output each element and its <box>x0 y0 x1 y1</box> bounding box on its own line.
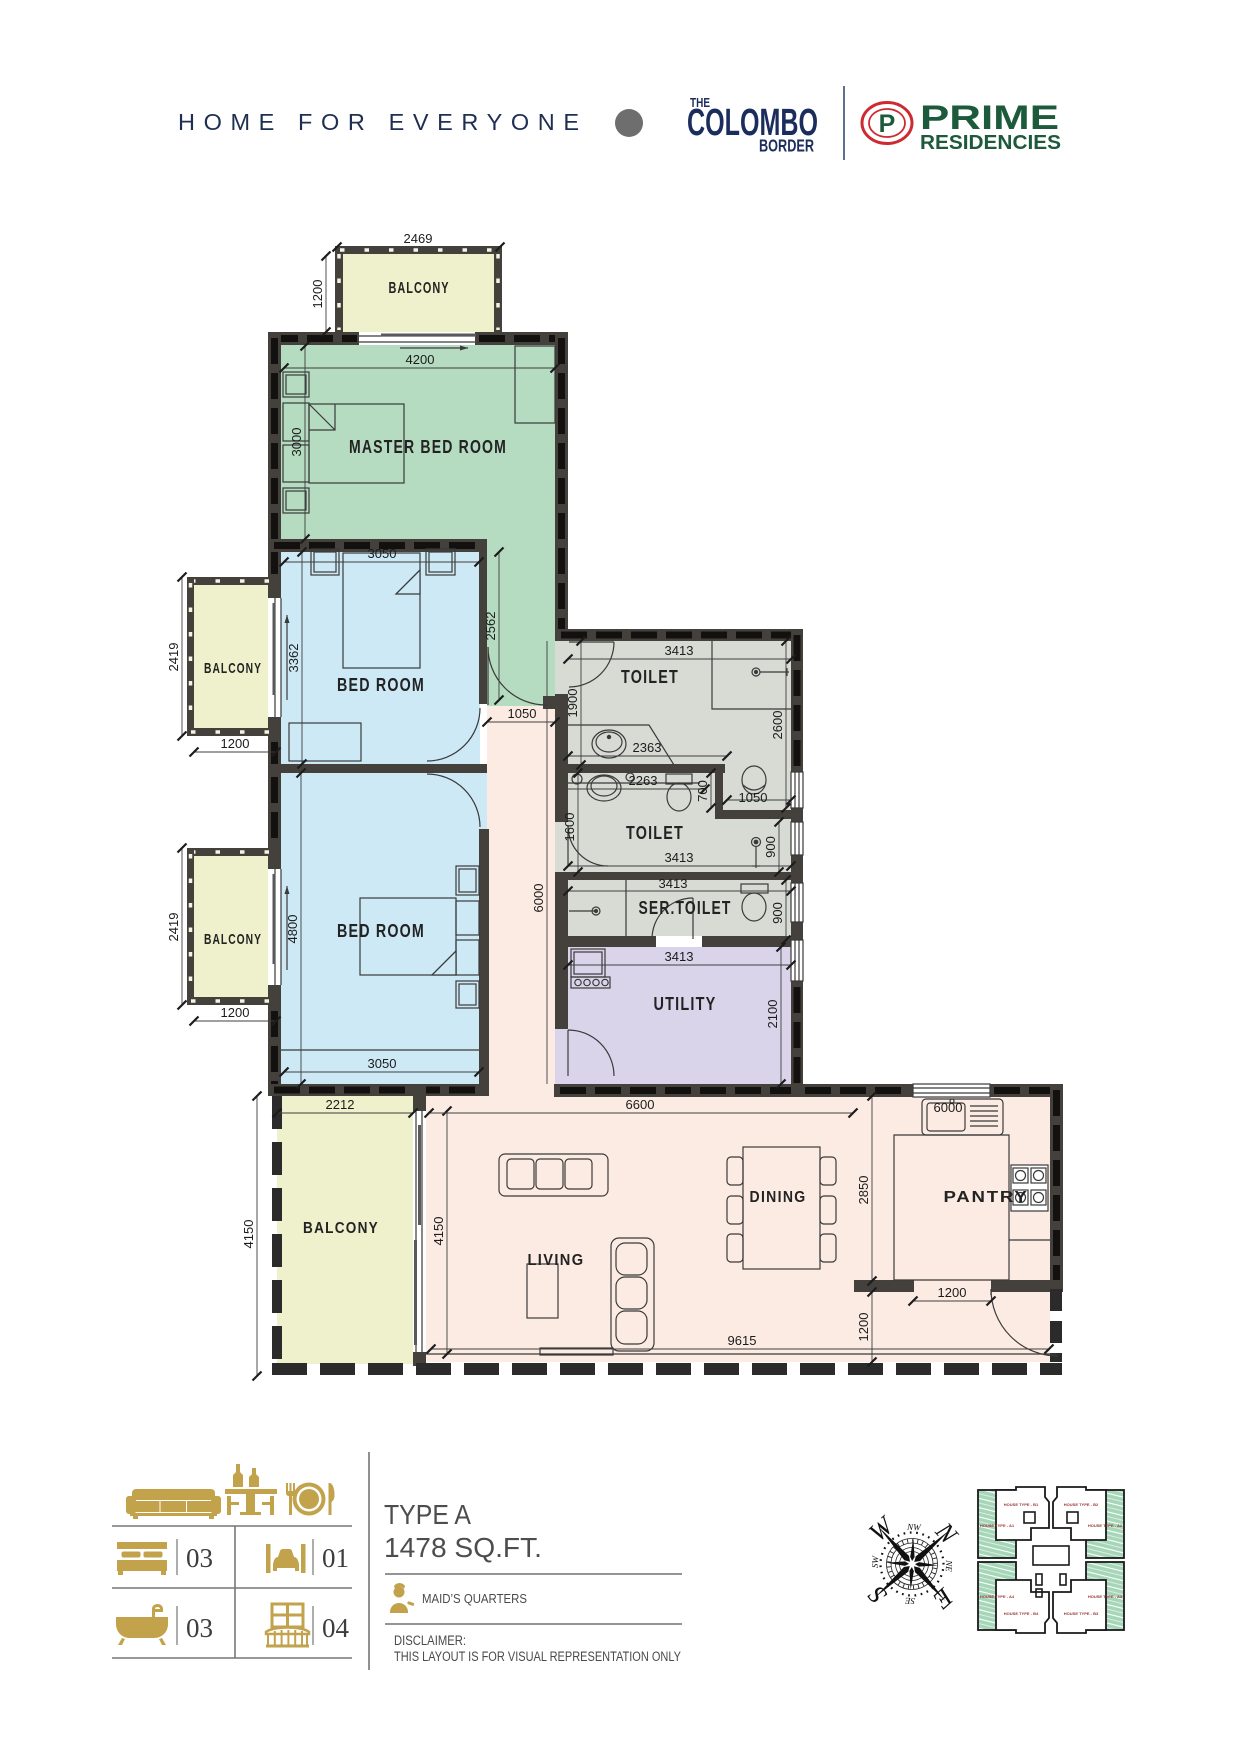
svg-text:2212: 2212 <box>326 1097 355 1112</box>
svg-text:HOUSE TYPE - A2: HOUSE TYPE - A2 <box>1088 1523 1123 1528</box>
svg-text:THIS LAYOUT IS FOR VISUAL REPR: THIS LAYOUT IS FOR VISUAL REPRESENTATION… <box>394 1649 681 1664</box>
svg-text:2363: 2363 <box>633 740 662 755</box>
svg-text:2562: 2562 <box>483 612 498 641</box>
svg-text:SE: SE <box>904 1596 915 1607</box>
svg-text:3362: 3362 <box>286 644 301 673</box>
svg-text:3413: 3413 <box>665 949 694 964</box>
svg-text:HOUSE TYPE - B2: HOUSE TYPE - B2 <box>1064 1502 1099 1507</box>
svg-text:3413: 3413 <box>659 876 688 891</box>
svg-text:HOUSE TYPE - B4: HOUSE TYPE - B4 <box>1004 1611 1039 1616</box>
svg-text:4800: 4800 <box>285 915 300 944</box>
svg-text:HOME FOR EVERYONE: HOME FOR EVERYONE <box>178 109 579 135</box>
svg-text:900: 900 <box>763 836 778 858</box>
svg-text:1050: 1050 <box>508 706 537 721</box>
svg-text:LIVING: LIVING <box>528 1252 585 1269</box>
svg-text:UTILITY: UTILITY <box>654 994 717 1014</box>
svg-text:MAID’S QUARTERS: MAID’S QUARTERS <box>422 1591 527 1606</box>
svg-text:900: 900 <box>770 902 785 924</box>
svg-text:4200: 4200 <box>406 352 435 367</box>
svg-text:1200: 1200 <box>310 280 325 309</box>
svg-text:1600: 1600 <box>562 813 577 842</box>
svg-text:1050: 1050 <box>739 790 768 805</box>
svg-text:1200: 1200 <box>856 1313 871 1342</box>
svg-text:2850: 2850 <box>856 1176 871 1205</box>
svg-text:MASTER BED ROOM: MASTER BED ROOM <box>349 437 507 457</box>
svg-text:RESIDENCIES: RESIDENCIES <box>920 132 1061 154</box>
svg-text:DISCLAIMER:: DISCLAIMER: <box>394 1633 466 1648</box>
svg-text:04: 04 <box>322 1613 350 1643</box>
svg-text:BALCONY: BALCONY <box>389 280 450 297</box>
svg-text:HOUSE TYPE - A3: HOUSE TYPE - A3 <box>1088 1594 1123 1599</box>
svg-text:3050: 3050 <box>368 1056 397 1071</box>
svg-text:3050: 3050 <box>368 546 397 561</box>
svg-text:1200: 1200 <box>221 1005 250 1020</box>
svg-text:SW: SW <box>870 1554 881 1568</box>
svg-text:6000: 6000 <box>934 1100 963 1115</box>
svg-text:2600: 2600 <box>770 711 785 740</box>
svg-text:6000: 6000 <box>531 884 546 913</box>
svg-text:BED ROOM: BED ROOM <box>337 675 425 695</box>
svg-text:BORDER: BORDER <box>759 136 814 156</box>
svg-text:2419: 2419 <box>166 913 181 942</box>
svg-text:TOILET: TOILET <box>621 667 679 687</box>
svg-text:3413: 3413 <box>665 643 694 658</box>
svg-text:HOUSE TYPE - A4: HOUSE TYPE - A4 <box>980 1594 1015 1599</box>
svg-text:03: 03 <box>186 1613 213 1643</box>
svg-text:SER.TOILET: SER.TOILET <box>639 898 732 918</box>
svg-text:6600: 6600 <box>626 1097 655 1112</box>
svg-text:3413: 3413 <box>665 850 694 865</box>
svg-text:TYPE A: TYPE A <box>384 1499 471 1530</box>
svg-text:2100: 2100 <box>765 1000 780 1029</box>
svg-text:HOUSE TYPE - A1: HOUSE TYPE - A1 <box>980 1523 1015 1528</box>
svg-text:1900: 1900 <box>565 689 580 718</box>
svg-text:BALCONY: BALCONY <box>303 1220 379 1237</box>
svg-text:03: 03 <box>186 1543 213 1573</box>
svg-text:4150: 4150 <box>431 1217 446 1246</box>
svg-text:4150: 4150 <box>241 1220 256 1249</box>
svg-text:NE: NE <box>944 1559 955 1573</box>
svg-text:HOUSE TYPE - B3: HOUSE TYPE - B3 <box>1064 1611 1099 1616</box>
svg-text:P: P <box>879 110 896 138</box>
svg-text:NW: NW <box>906 1522 923 1533</box>
svg-text:1478 SQ.FT.: 1478 SQ.FT. <box>384 1532 542 1563</box>
svg-text:1200: 1200 <box>938 1285 967 1300</box>
svg-text:1200: 1200 <box>221 736 250 751</box>
svg-text:700: 700 <box>695 780 710 802</box>
svg-text:TOILET: TOILET <box>626 823 684 843</box>
svg-text:9615: 9615 <box>728 1333 757 1348</box>
svg-text:2469: 2469 <box>404 231 433 246</box>
svg-text:2263: 2263 <box>629 773 658 788</box>
svg-text:01: 01 <box>322 1543 349 1573</box>
svg-text:PANTRY: PANTRY <box>944 1189 1029 1206</box>
svg-text:BALCONY: BALCONY <box>204 660 262 677</box>
svg-text:DINING: DINING <box>750 1189 807 1206</box>
svg-text:3000: 3000 <box>289 428 304 457</box>
svg-text:BED ROOM: BED ROOM <box>337 921 425 941</box>
svg-text:2419: 2419 <box>166 643 181 672</box>
svg-text:HOUSE TYPE - B1: HOUSE TYPE - B1 <box>1004 1502 1039 1507</box>
svg-text:BALCONY: BALCONY <box>204 931 262 948</box>
